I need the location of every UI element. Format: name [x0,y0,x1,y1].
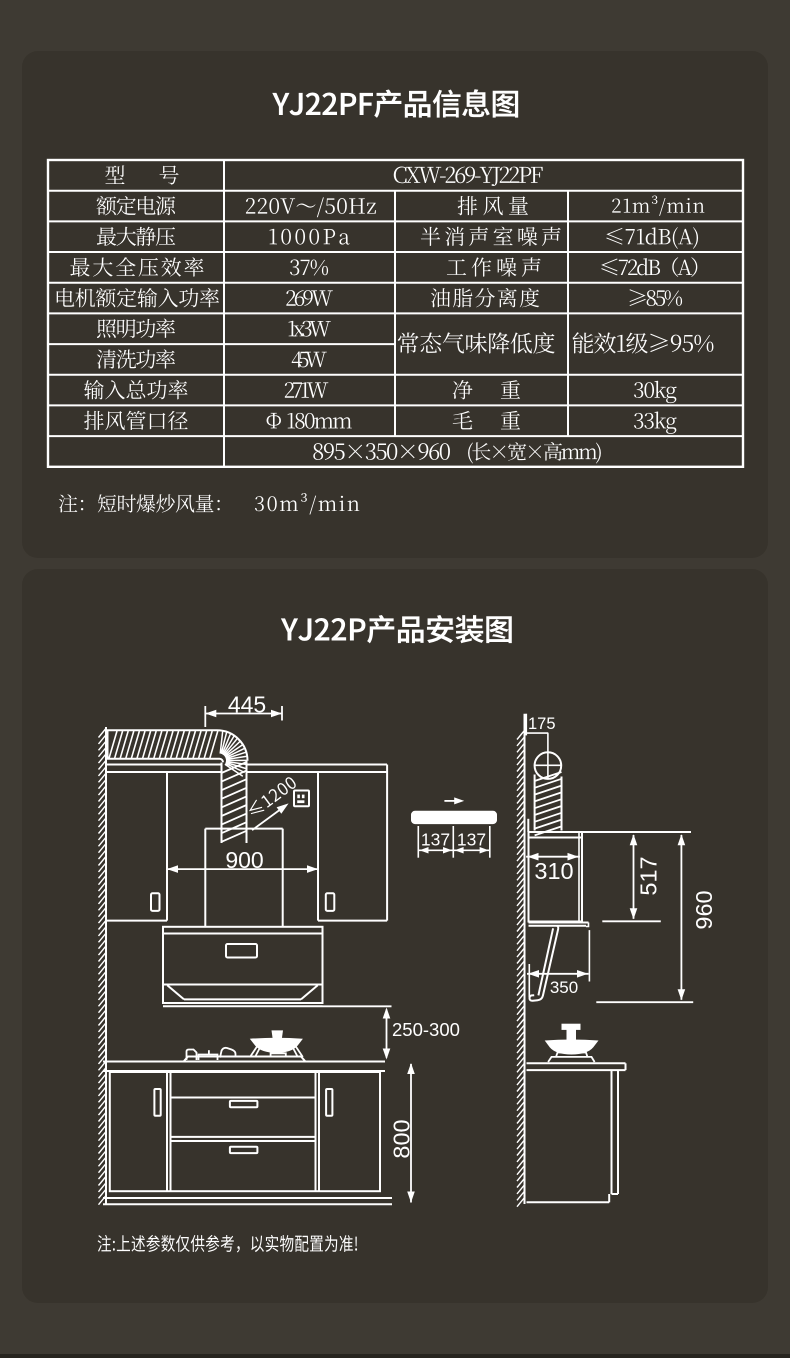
svg-text:800: 800 [389,1119,415,1158]
svg-text:137: 137 [457,829,486,849]
svg-text:137: 137 [421,829,450,849]
svg-text:175: 175 [528,715,556,733]
svg-text:310: 310 [534,858,573,884]
svg-text:517: 517 [636,856,662,895]
svg-text:960: 960 [691,890,717,929]
svg-text:445: 445 [228,692,266,718]
svg-text:350: 350 [550,978,578,997]
svg-text:250-300: 250-300 [392,1019,460,1040]
svg-text:900: 900 [225,847,263,873]
